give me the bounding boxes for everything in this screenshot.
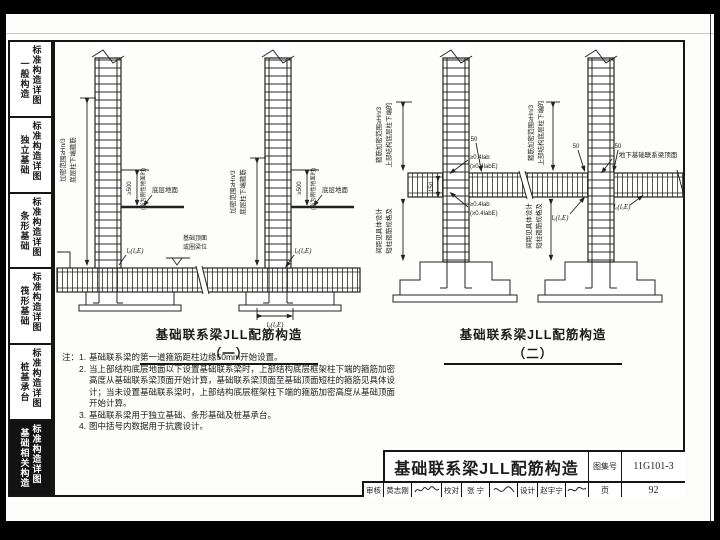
stirrup-note-line2: 加密范围≥Hn/3 — [58, 138, 67, 182]
chapter-tab-strip: 一般构造 标准构造详图 独立基础 标准构造详图 条形基础 标准构造详图 筏形基础… — [8, 40, 53, 497]
notes-prefix: 注： — [62, 352, 79, 364]
detail-two: 上部结构底层柱下端的 箍筋加密范围≥Hn/3 短柱箍筋规格及 间距见具体设计 上… — [374, 44, 685, 302]
grade-step — [57, 252, 70, 268]
footing-slab — [79, 305, 181, 311]
note-text: 基础联系梁的第一道箍筋距柱边缘50mm开始设置。 — [89, 352, 400, 364]
tab-independent-foundation: 独立基础 标准构造详图 — [10, 118, 51, 194]
tab-category-label: 独立基础 — [20, 135, 30, 175]
notes-block: 注： 1. 基础联系梁的第一道箍筋距柱边缘50mm开始设置。 2. 当上部结构底… — [62, 352, 400, 433]
upper-column-note-line2: 箍筋加密范围≥Hn/3 — [526, 104, 535, 161]
tab-pile-cap: 桩基承台 标准构造详图 — [10, 345, 51, 421]
atlas-page: 一般构造 标准构造详图 独立基础 标准构造详图 条形基础 标准构造详图 筏形基础… — [0, 0, 720, 540]
dim-50-label: 50 — [471, 137, 478, 143]
reviewer-name: 黄志刚 — [384, 483, 412, 497]
dim-500-label: ≥500 — [127, 181, 133, 195]
page-label: 页 — [589, 483, 622, 497]
short-column-note-line2: 间距见具体设计 — [524, 203, 533, 249]
signature-image — [492, 484, 516, 496]
footing-slab — [239, 305, 341, 311]
tab-sub-label: 标准构造详图 — [32, 269, 42, 332]
frame-column-with-short-column — [584, 44, 618, 288]
tab-sub-label: 标准构造详图 — [32, 194, 42, 257]
tab-category-label: 一般构造 — [20, 59, 30, 99]
page-edge-shadow — [6, 33, 714, 34]
tab-category-label: 基础相关构造 — [20, 428, 30, 488]
tab-sub-label: 标准构造详图 — [32, 421, 42, 484]
atlas-number: 11G101-3 — [622, 452, 685, 481]
upper-column-note-line2: 箍筋加密范围≥Hn/3 — [374, 106, 383, 163]
note-number: 4. — [79, 421, 89, 433]
tab-strip-foundation: 条形基础 标准构造详图 — [10, 194, 51, 270]
anchor-straight-seismic-label: (≥0.4labE) — [470, 211, 498, 217]
anchor-length-label: lₐ(lₐE) — [295, 247, 313, 255]
checker-name: 张 宁 — [462, 483, 490, 497]
designer-signature — [566, 483, 589, 497]
tab-foundation-related-active: 基础相关构造 标准构造详图 — [10, 421, 51, 495]
tab-raft-foundation: 筏形基础 标准构造详图 — [10, 269, 51, 345]
title-block-row1: 基础联系梁JLL配筋构造 图集号 11G101-3 — [383, 450, 685, 481]
atlas-number-label: 图集号 — [589, 452, 622, 481]
page-number: 92 — [622, 483, 685, 497]
dim-15d-label: 15d — [429, 182, 435, 192]
short-column-note-line2: 间距见具体设计 — [374, 208, 383, 254]
signature-image — [414, 484, 440, 496]
stirrup-note-line2: 加密范围≥Hn/3 — [228, 170, 237, 214]
dim-50-label: 50 — [573, 144, 580, 150]
level-label-line1: 基础顶面 — [183, 234, 207, 242]
note-number: 1. — [79, 352, 89, 364]
ground-label: 底层地面 — [322, 185, 349, 194]
tab-sub-label: 标准构造详图 — [32, 118, 42, 181]
tab-category-label: 筏形基础 — [20, 286, 30, 326]
anchor-length-label: lₐ(lₐE) — [614, 203, 632, 211]
frame-column — [261, 44, 295, 303]
tab-category-label: 桩基承台 — [20, 362, 30, 402]
anchor-straight-seismic-label: (≥0.4labE) — [470, 164, 498, 170]
checker-label: 校对 — [442, 483, 462, 497]
note-text: 当上部结构底层地面以下设置基础联系梁时，上部结构底层框架柱下端的箍筋加密高度从基… — [89, 364, 400, 410]
detail-two-title: 基础联系梁JLL配筋构造（二） — [444, 324, 622, 365]
anchor-length-label: lₐ(lₐE) — [127, 247, 145, 255]
stirrup-note-line1: 底层柱下端箍筋 — [68, 137, 77, 183]
designer-label: 设计 — [518, 483, 538, 497]
frame-column-with-short-column — [439, 44, 473, 288]
paper-sheet: 一般构造 标准构造详图 独立基础 标准构造详图 条形基础 标准构造详图 筏形基础… — [6, 14, 714, 521]
note-number: 3. — [79, 410, 89, 422]
footing-base — [393, 295, 517, 302]
footing-base — [538, 295, 662, 302]
title-block-row2: 审核 黄志刚 校对 张 宁 设计 赵宇宁 页 92 — [362, 481, 685, 497]
designer-name: 赵宇宁 — [538, 483, 566, 497]
upper-column-note-line1: 上部结构底层柱下端的 — [536, 100, 545, 166]
detail-one: 底层柱下端箍筋 加密范围≥Hn/3 底层柱下端箍筋 加密范围≥Hn/3 ≥500… — [57, 44, 360, 329]
level-symbol — [166, 258, 190, 265]
reviewer-label: 审核 — [364, 483, 384, 497]
short-column-note-line1: 短柱箍筋规格及 — [384, 208, 393, 254]
stirrup-note-line1: 底层柱下端箍筋 — [238, 169, 247, 215]
tab-sub-label: 标准构造详图 — [32, 42, 42, 105]
stepped-footing — [545, 262, 655, 295]
signature-image — [567, 484, 587, 496]
page-right-edge — [710, 14, 711, 521]
checker-signature — [490, 483, 518, 497]
dim-50-label: 50 — [615, 144, 622, 150]
rigid-ground-note: (当为刚性地面时) — [139, 168, 147, 210]
tab-category-label: 条形基础 — [20, 211, 30, 251]
short-column-note-line1: 短柱箍筋规格及 — [534, 203, 543, 249]
anchor-straight-label: ≥0.4lab — [470, 155, 490, 161]
dim-500-label: ≥500 — [297, 181, 303, 195]
ground-label: 底层地面 — [152, 185, 179, 194]
note-text: 图中括号内数据用于抗震设计。 — [89, 421, 400, 433]
note-number: 2. — [79, 364, 89, 410]
anchor-length-label: lₐ(lₐE) — [552, 214, 570, 222]
rigid-ground-note: (当为刚性地面时) — [309, 168, 317, 210]
stepped-footing — [400, 262, 510, 295]
tab-general-construction: 一般构造 标准构造详图 — [10, 42, 51, 118]
note-text: 基础联系梁用于独立基础、条形基础及桩基承台。 — [89, 410, 400, 422]
tab-sub-label: 标准构造详图 — [32, 345, 42, 408]
reviewer-signature — [412, 483, 442, 497]
upper-column-note-line1: 上部结构底层柱下端的 — [384, 102, 393, 168]
anchor-straight-label: ≥0.4lab — [470, 202, 490, 208]
beam-top-level-label: 地下基础联系梁顶面 — [619, 150, 678, 159]
level-label-line2: 或圈梁位 — [183, 243, 207, 251]
sheet-title: 基础联系梁JLL配筋构造 — [385, 452, 589, 481]
